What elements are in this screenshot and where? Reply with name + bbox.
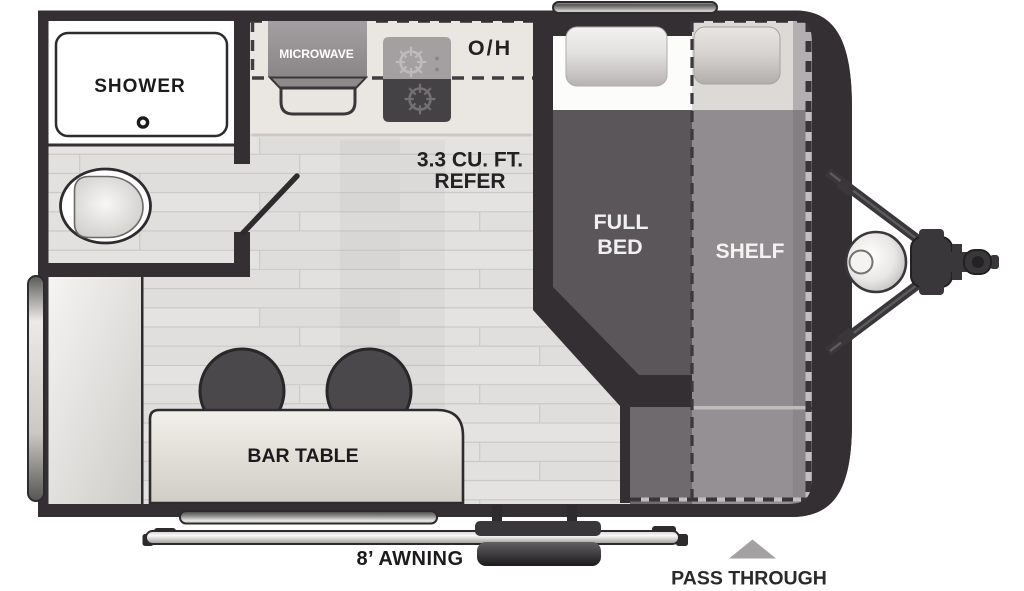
- svg-text:REFER: REFER: [434, 170, 505, 193]
- svg-text:8’ AWNING: 8’ AWNING: [356, 548, 463, 570]
- svg-text:BAR TABLE: BAR TABLE: [247, 445, 358, 467]
- svg-text:PASS THROUGH: PASS THROUGH: [671, 568, 827, 590]
- svg-text:O/H: O/H: [468, 36, 512, 60]
- svg-text:SHOWER: SHOWER: [94, 76, 186, 97]
- svg-text:SHELF: SHELF: [716, 240, 785, 263]
- svg-text:MICROWAVE: MICROWAVE: [279, 47, 353, 61]
- svg-text:FULL: FULL: [594, 210, 649, 234]
- svg-text:BED: BED: [597, 235, 642, 259]
- svg-text:3.3 CU. FT.: 3.3 CU. FT.: [417, 149, 523, 172]
